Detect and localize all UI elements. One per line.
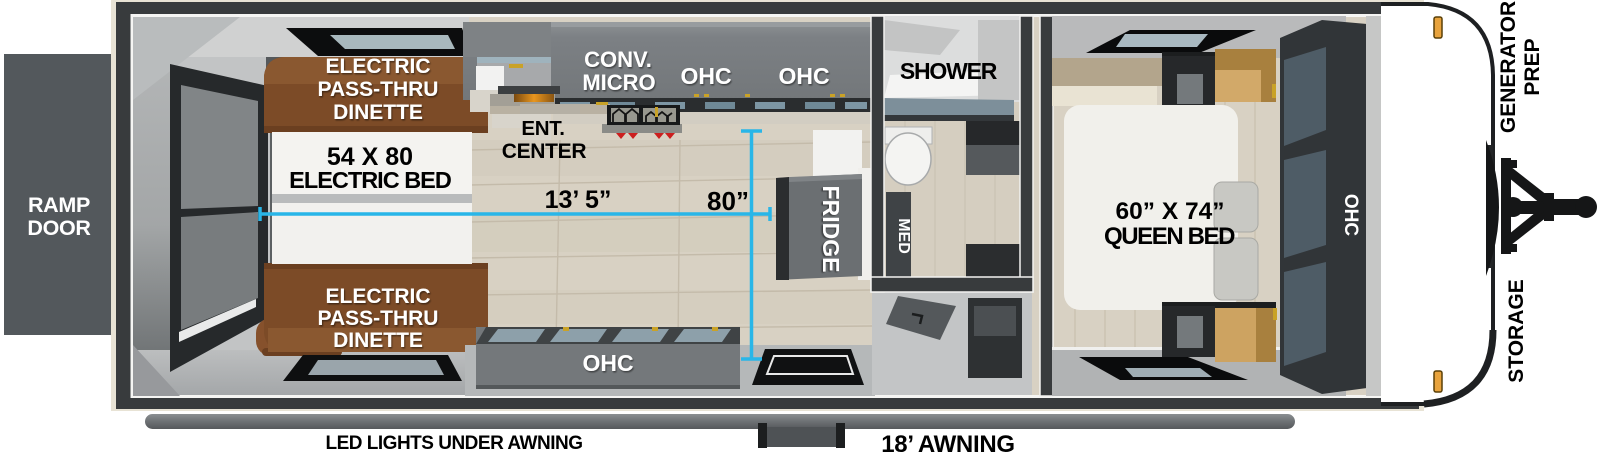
svg-text:MED: MED	[895, 218, 912, 254]
svg-text:MICRO: MICRO	[582, 70, 655, 95]
svg-text:ELECTRIC: ELECTRIC	[326, 285, 431, 308]
svg-text:DINETTE: DINETTE	[333, 329, 423, 352]
svg-text:PASS-THRU: PASS-THRU	[318, 78, 439, 101]
svg-text:SHOWER: SHOWER	[900, 58, 998, 84]
svg-text:18’ AWNING: 18’ AWNING	[881, 431, 1014, 455]
svg-text:ELECTRIC: ELECTRIC	[326, 55, 431, 78]
svg-text:DOOR: DOOR	[27, 216, 91, 240]
svg-text:FRIDGE: FRIDGE	[818, 186, 844, 273]
svg-text:DINETTE: DINETTE	[333, 101, 423, 124]
svg-text:OHC: OHC	[778, 63, 829, 89]
svg-text:13’ 5”: 13’ 5”	[545, 186, 612, 214]
svg-text:CONV.: CONV.	[584, 47, 652, 72]
svg-text:OHC: OHC	[1340, 194, 1361, 237]
svg-text:RAMP: RAMP	[28, 193, 90, 217]
svg-text:GENERATOR: GENERATOR	[1497, 1, 1520, 133]
svg-text:OHC: OHC	[582, 350, 633, 376]
svg-text:ELECTRIC BED: ELECTRIC BED	[289, 167, 451, 193]
svg-text:LED LIGHTS UNDER AWNING: LED LIGHTS UNDER AWNING	[326, 433, 583, 454]
svg-text:60” X 74”: 60” X 74”	[1116, 198, 1225, 225]
svg-text:CENTER: CENTER	[502, 140, 587, 163]
svg-text:STORAGE: STORAGE	[1505, 279, 1528, 382]
svg-text:80”: 80”	[707, 186, 749, 216]
svg-text:QUEEN BED: QUEEN BED	[1104, 223, 1235, 250]
svg-text:OHC: OHC	[680, 63, 731, 89]
svg-text:PREP: PREP	[1521, 38, 1544, 95]
svg-text:ENT.: ENT.	[521, 117, 564, 140]
svg-text:PASS-THRU: PASS-THRU	[318, 307, 439, 330]
